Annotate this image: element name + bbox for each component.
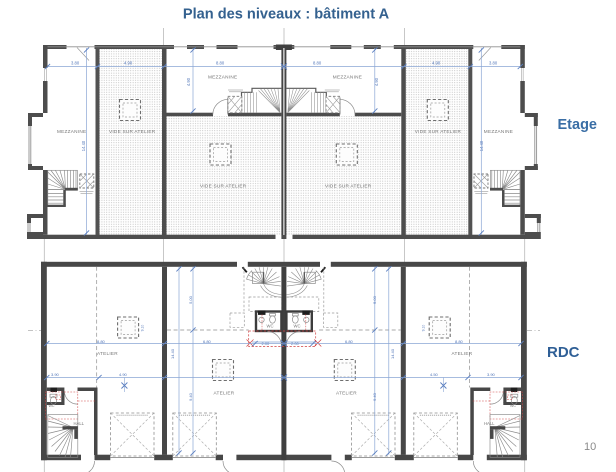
- svg-text:8.80: 8.80: [216, 61, 225, 66]
- svg-text:WC: WC: [49, 404, 55, 408]
- svg-text:4.90: 4.90: [186, 77, 191, 86]
- svg-text:MEZZANINE: MEZZANINE: [57, 129, 86, 134]
- svg-text:VIDE SUR ATELIER: VIDE SUR ATELIER: [109, 129, 156, 134]
- svg-text:MEZZANINE: MEZZANINE: [333, 75, 362, 80]
- svg-text:WC: WC: [510, 404, 516, 408]
- svg-text:4.90: 4.90: [119, 372, 128, 377]
- svg-text:14.40: 14.40: [170, 348, 175, 359]
- svg-text:ATELIER: ATELIER: [214, 391, 235, 396]
- svg-text:14.40: 14.40: [81, 140, 86, 151]
- svg-text:3.80: 3.80: [71, 61, 80, 66]
- svg-text:8.80: 8.80: [455, 339, 464, 344]
- svg-text:4.50: 4.50: [430, 372, 439, 377]
- svg-text:Etage: Etage: [558, 117, 598, 133]
- svg-text:9.10: 9.10: [141, 325, 145, 332]
- svg-text:RDC: RDC: [547, 344, 580, 361]
- svg-text:3.90: 3.90: [487, 372, 496, 377]
- svg-text:4.90: 4.90: [124, 61, 133, 66]
- svg-text:4.90: 4.90: [432, 61, 441, 66]
- svg-text:ATELIER: ATELIER: [336, 391, 357, 396]
- svg-text:5.00: 5.00: [372, 295, 377, 304]
- svg-text:WC: WC: [294, 324, 301, 329]
- svg-text:14.40: 14.40: [390, 348, 395, 359]
- svg-text:VIDE SUR ATELIER: VIDE SUR ATELIER: [415, 129, 462, 134]
- svg-text:MEZZANINE: MEZZANINE: [208, 75, 237, 80]
- svg-text:8.80: 8.80: [97, 339, 106, 344]
- svg-text:9.10: 9.10: [421, 325, 425, 332]
- svg-text:8.80: 8.80: [313, 61, 322, 66]
- svg-text:4.90: 4.90: [374, 77, 379, 86]
- svg-text:10: 10: [584, 441, 596, 453]
- svg-text:9.40: 9.40: [188, 392, 193, 401]
- svg-text:HALL: HALL: [74, 421, 85, 426]
- svg-text:ATELIER: ATELIER: [97, 351, 118, 356]
- svg-text:MEZZANINE: MEZZANINE: [484, 129, 513, 134]
- svg-text:9.40: 9.40: [372, 392, 377, 401]
- svg-text:ATELIER: ATELIER: [452, 351, 473, 356]
- svg-text:Plan des niveaux : bâtiment A: Plan des niveaux : bâtiment A: [183, 7, 390, 23]
- svg-text:WC: WC: [267, 324, 274, 329]
- svg-text:VIDE SUR ATELIER: VIDE SUR ATELIER: [325, 184, 372, 189]
- svg-text:HALL: HALL: [484, 421, 495, 426]
- svg-text:6.80: 6.80: [203, 339, 212, 344]
- svg-text:3.80: 3.80: [489, 61, 498, 66]
- svg-text:5.00: 5.00: [188, 295, 193, 304]
- svg-text:14.40: 14.40: [479, 140, 484, 151]
- svg-text:6.80: 6.80: [345, 339, 354, 344]
- svg-text:VIDE SUR ATELIER: VIDE SUR ATELIER: [200, 184, 247, 189]
- svg-text:3.90: 3.90: [51, 372, 60, 377]
